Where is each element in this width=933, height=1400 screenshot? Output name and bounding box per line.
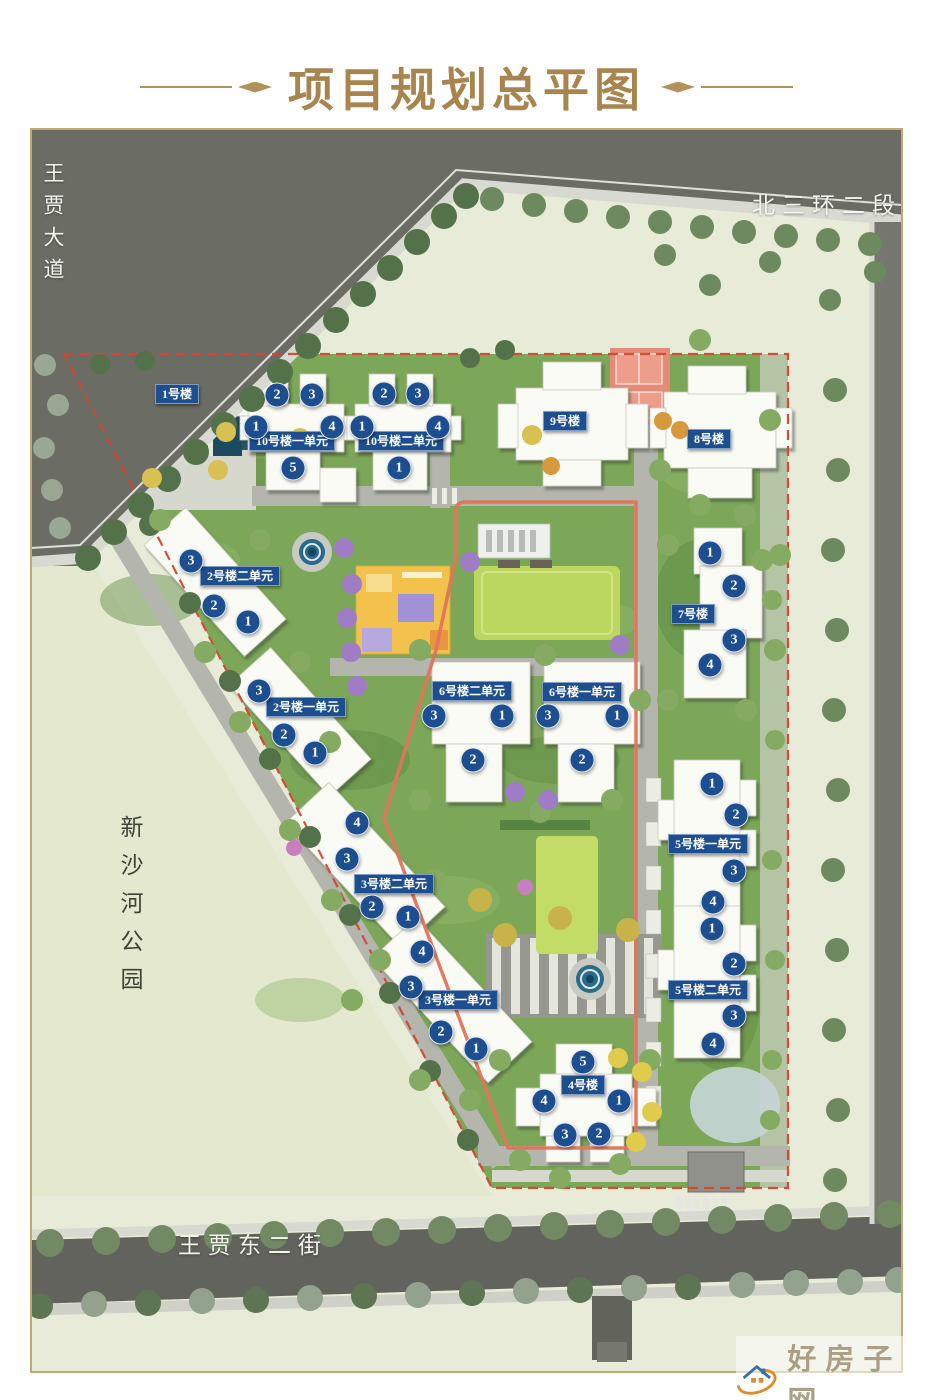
- unit-number-badge: 1: [464, 1037, 489, 1062]
- unit-number-badge: 2: [429, 1020, 454, 1045]
- unit-number-badge: 4: [701, 890, 726, 915]
- unit-number-badge: 2: [461, 748, 486, 773]
- unit-number-badge: 3: [406, 382, 431, 407]
- building-label: 2号楼一单元: [266, 697, 346, 717]
- unit-number-badge: 1: [303, 741, 328, 766]
- unit-number-badge: 3: [300, 383, 325, 408]
- unit-number-badge: 1: [244, 415, 269, 440]
- unit-number-badge: 2: [360, 895, 385, 920]
- building-label: 3号楼二单元: [354, 874, 434, 894]
- map-markers: 1号楼10号楼一单元2314510号楼二单元231419号楼8号楼2号楼二单元3…: [0, 0, 933, 1400]
- unit-number-badge: 2: [722, 952, 747, 977]
- unit-number-badge: 2: [372, 382, 397, 407]
- unit-number-badge: 3: [247, 679, 272, 704]
- unit-number-badge: 1: [605, 704, 630, 729]
- unit-number-badge: 2: [570, 748, 595, 773]
- unit-number-badge: 1: [387, 456, 412, 481]
- unit-number-badge: 1: [698, 541, 723, 566]
- unit-number-badge: 4: [410, 940, 435, 965]
- unit-number-badge: 2: [202, 594, 227, 619]
- building-label: 9号楼: [543, 411, 587, 431]
- unit-number-badge: 4: [698, 653, 723, 678]
- building-label: 4号楼: [561, 1075, 605, 1095]
- unit-number-badge: 5: [571, 1050, 596, 1075]
- unit-number-badge: 1: [350, 415, 375, 440]
- watermark-site-name: 好房子网: [787, 1336, 931, 1400]
- unit-number-badge: 1: [236, 610, 261, 635]
- unit-number-badge: 3: [335, 847, 360, 872]
- unit-number-badge: 3: [179, 549, 204, 574]
- unit-number-badge: 4: [345, 811, 370, 836]
- building-label: 6号楼一单元: [542, 682, 622, 702]
- unit-number-badge: 1: [700, 772, 725, 797]
- building-label: 5号楼一单元: [668, 834, 748, 854]
- building-label: 2号楼二单元: [200, 566, 280, 586]
- house-logo-icon: [736, 1360, 781, 1396]
- building-label: 1号楼: [155, 384, 199, 404]
- unit-number-badge: 4: [426, 415, 451, 440]
- unit-number-badge: 3: [722, 1004, 747, 1029]
- site-watermark: 好房子网 www.hfangziwang.com: [736, 1336, 931, 1398]
- unit-number-badge: 2: [265, 383, 290, 408]
- unit-number-badge: 3: [722, 859, 747, 884]
- page-root: 项目规划总平图: [0, 0, 933, 1400]
- building-label: 7号楼: [671, 604, 715, 624]
- unit-number-badge: 4: [532, 1089, 557, 1114]
- unit-number-badge: 1: [490, 704, 515, 729]
- building-label: 3号楼一单元: [418, 990, 498, 1010]
- unit-number-badge: 5: [281, 456, 306, 481]
- building-label: 6号楼二单元: [432, 681, 512, 701]
- unit-number-badge: 1: [700, 917, 725, 942]
- unit-number-badge: 3: [553, 1123, 578, 1148]
- unit-number-badge: 1: [396, 905, 421, 930]
- unit-number-badge: 2: [722, 574, 747, 599]
- unit-number-badge: 4: [320, 415, 345, 440]
- building-label: 5号楼二单元: [668, 980, 748, 1000]
- building-label: 8号楼: [687, 429, 731, 449]
- unit-number-badge: 3: [722, 628, 747, 653]
- unit-number-badge: 3: [399, 975, 424, 1000]
- unit-number-badge: 4: [701, 1032, 726, 1057]
- unit-number-badge: 2: [587, 1122, 612, 1147]
- unit-number-badge: 3: [422, 704, 447, 729]
- watermark-top: 好房子网: [736, 1336, 931, 1400]
- unit-number-badge: 3: [536, 704, 561, 729]
- unit-number-badge: 2: [272, 723, 297, 748]
- unit-number-badge: 1: [607, 1089, 632, 1114]
- unit-number-badge: 2: [724, 803, 749, 828]
